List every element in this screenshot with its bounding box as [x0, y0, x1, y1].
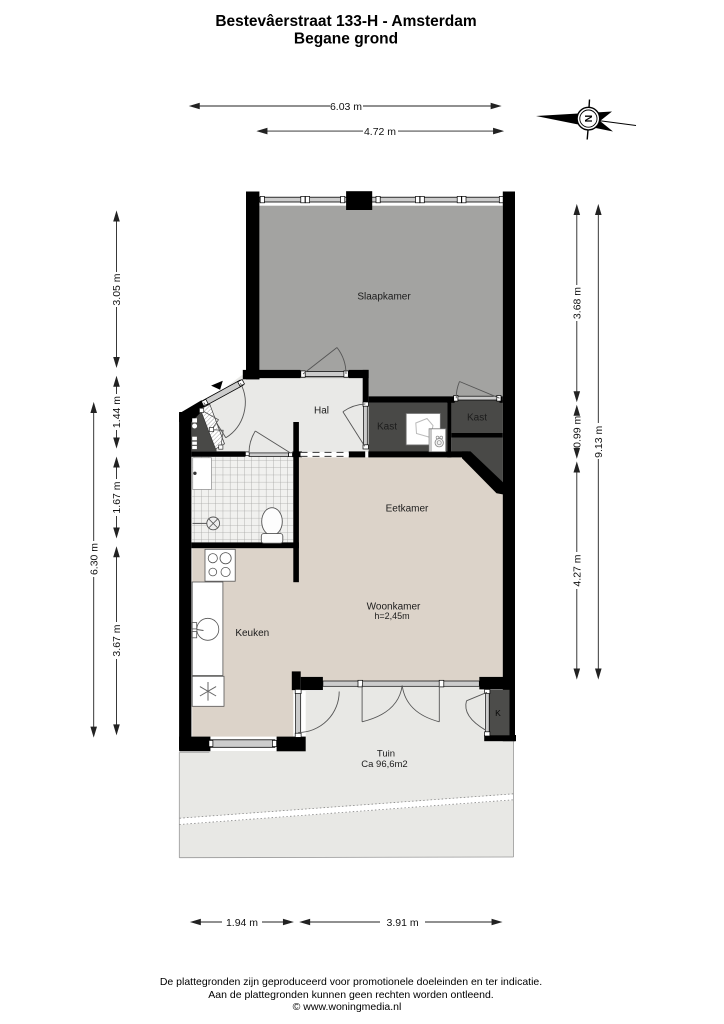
svg-text:K: K: [495, 708, 501, 718]
svg-text:Kast: Kast: [377, 422, 397, 433]
svg-text:Tuin: Tuin: [377, 749, 395, 760]
svg-text:Ca 96,6m2: Ca 96,6m2: [361, 759, 407, 770]
svg-text:0.99 m: 0.99 m: [571, 416, 583, 448]
svg-text:1.44 m: 1.44 m: [111, 396, 123, 428]
svg-text:© www.woningmedia.nl: © www.woningmedia.nl: [293, 1001, 402, 1013]
svg-text:1.94 m: 1.94 m: [226, 917, 258, 929]
svg-text:3.67 m: 3.67 m: [111, 624, 123, 656]
svg-text:4.27 m: 4.27 m: [571, 554, 583, 586]
svg-text:h=2,45m: h=2,45m: [374, 611, 409, 621]
svg-text:6.03 m: 6.03 m: [330, 101, 362, 113]
svg-text:4.72 m: 4.72 m: [364, 126, 396, 138]
svg-text:N: N: [583, 115, 595, 123]
svg-text:9.13 m: 9.13 m: [593, 426, 605, 458]
svg-text:3.05 m: 3.05 m: [111, 273, 123, 305]
svg-text:3.68 m: 3.68 m: [571, 287, 583, 319]
svg-text:Aan de plattegronden kunnen ge: Aan de plattegronden kunnen geen rechten…: [208, 989, 493, 1001]
svg-text:Eetkamer: Eetkamer: [386, 504, 429, 515]
svg-text:3.91 m: 3.91 m: [387, 917, 419, 929]
svg-text:Hal: Hal: [314, 406, 329, 417]
svg-text:1.67 m: 1.67 m: [111, 481, 123, 513]
svg-text:De plattegronden zijn geproduc: De plattegronden zijn geproduceerd voor …: [160, 976, 542, 988]
svg-text:Slaapkamer: Slaapkamer: [357, 292, 411, 303]
svg-text:Bestevâerstraat 133-H - Amster: Bestevâerstraat 133-H - Amsterdam: [215, 13, 476, 30]
svg-text:Keuken: Keuken: [235, 628, 269, 639]
svg-text:Kast: Kast: [467, 413, 487, 424]
svg-text:6.30 m: 6.30 m: [88, 543, 100, 575]
svg-text:Begane grond: Begane grond: [294, 31, 398, 48]
